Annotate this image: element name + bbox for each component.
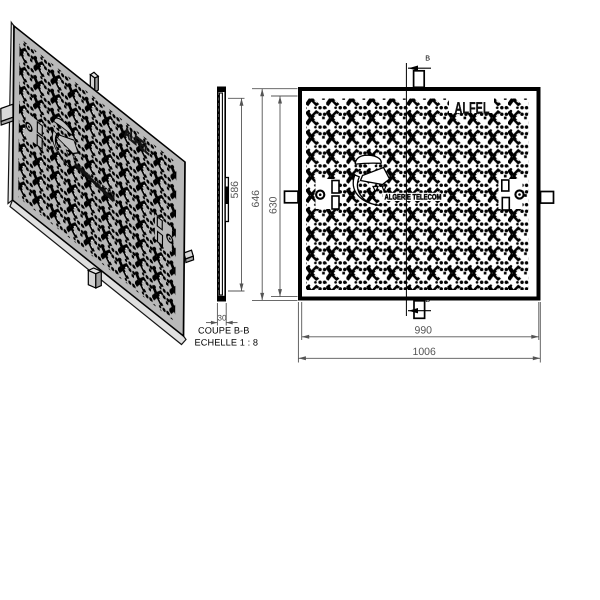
svg-text:630: 630 xyxy=(268,196,280,214)
svg-text:COUPE B-B: COUPE B-B xyxy=(198,326,249,336)
svg-text:646: 646 xyxy=(250,190,262,208)
svg-text:ECHELLE 1 : 8: ECHELLE 1 : 8 xyxy=(195,338,259,348)
svg-text:30: 30 xyxy=(218,314,227,323)
svg-text:1006: 1006 xyxy=(413,346,437,358)
svg-text:990: 990 xyxy=(415,324,433,336)
svg-text:586: 586 xyxy=(229,181,241,199)
svg-text:B: B xyxy=(425,53,430,62)
svg-text:B: B xyxy=(425,295,430,304)
